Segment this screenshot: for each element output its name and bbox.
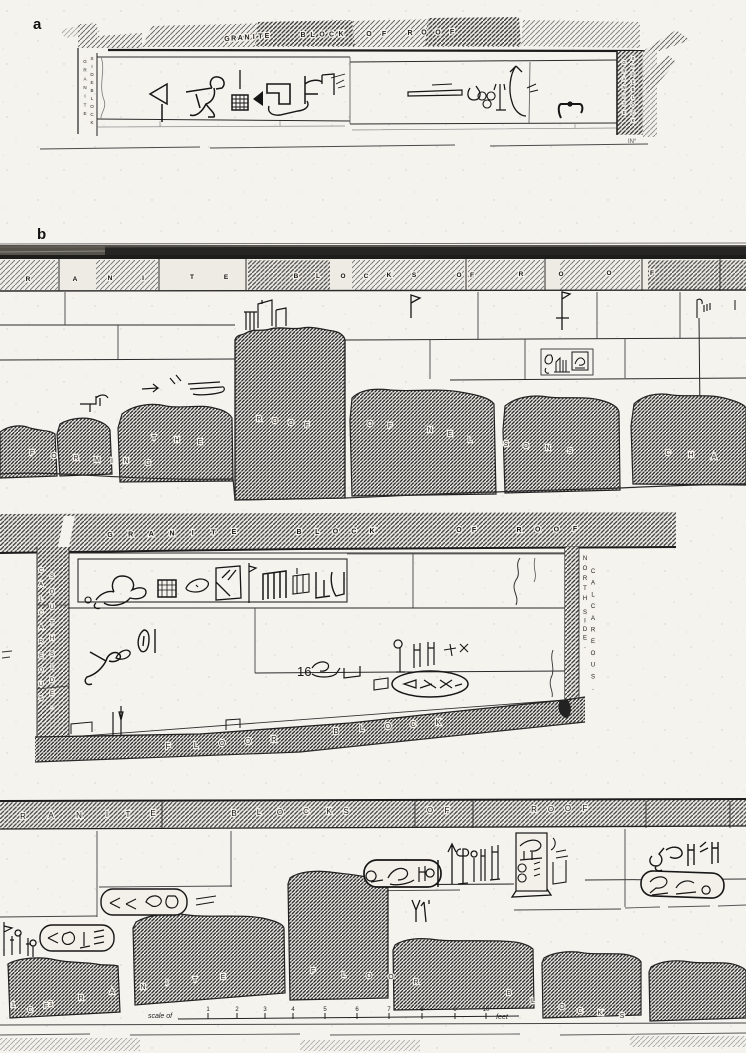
svg-text:O: O: [606, 270, 611, 277]
svg-text:F: F: [650, 270, 654, 277]
svg-text:E: E: [198, 439, 203, 446]
svg-text:O: O: [367, 421, 373, 428]
svg-text:A: A: [48, 811, 54, 820]
svg-text:O: O: [385, 722, 391, 731]
svg-text:O: O: [366, 973, 372, 980]
svg-text:L: L: [194, 741, 199, 750]
svg-text:N: N: [83, 85, 86, 90]
svg-text:K: K: [632, 118, 635, 123]
svg-text:T: T: [258, 34, 263, 41]
svg-text:I: I: [142, 275, 144, 282]
svg-text:T: T: [623, 102, 626, 107]
svg-text:K: K: [369, 528, 374, 535]
svg-text:B: B: [507, 990, 512, 997]
svg-text:R: R: [231, 36, 236, 43]
svg-text:O: O: [272, 418, 278, 425]
svg-text:S: S: [343, 807, 348, 816]
svg-text:C: C: [410, 720, 416, 729]
svg-text:O: O: [39, 668, 44, 674]
svg-text:feet: feet: [496, 1014, 509, 1021]
svg-text:O: O: [421, 30, 427, 37]
svg-text:A: A: [39, 582, 43, 588]
svg-text:K: K: [598, 1010, 603, 1017]
svg-text:O: O: [51, 453, 57, 460]
svg-text:E: E: [83, 111, 86, 116]
svg-text:E: E: [591, 639, 595, 645]
svg-text:U: U: [50, 605, 54, 611]
svg-text:A: A: [83, 76, 86, 81]
svg-text:F: F: [388, 423, 392, 430]
svg-text:A: A: [73, 276, 78, 283]
svg-text:E: E: [150, 809, 155, 818]
svg-text:I: I: [623, 93, 624, 98]
svg-text:F: F: [445, 806, 450, 815]
svg-text:C: C: [39, 568, 43, 574]
svg-text:L: L: [360, 724, 365, 733]
svg-text:R: R: [39, 639, 43, 645]
svg-text:N: N: [583, 556, 587, 562]
svg-text:E: E: [623, 110, 626, 115]
svg-text:E: E: [224, 274, 229, 281]
svg-text:O: O: [366, 31, 372, 38]
svg-text:S: S: [90, 56, 93, 61]
svg-text:C: C: [631, 110, 634, 115]
svg-text:B: B: [632, 87, 635, 92]
svg-text:O: O: [554, 526, 560, 533]
svg-text:L: L: [257, 808, 262, 817]
svg-text:H: H: [583, 596, 587, 602]
svg-text:K: K: [90, 120, 93, 125]
svg-text:G: G: [83, 59, 87, 64]
svg-text:L: L: [316, 273, 320, 280]
svg-text:L: L: [342, 972, 346, 979]
svg-text:K: K: [435, 718, 441, 727]
svg-text:R: R: [622, 68, 625, 73]
svg-text:B: B: [231, 809, 236, 818]
svg-text:F: F: [583, 804, 588, 813]
svg-text:D: D: [631, 72, 634, 77]
svg-text:T: T: [190, 274, 194, 281]
svg-text:E: E: [90, 80, 93, 85]
svg-text:C: C: [329, 31, 334, 38]
svg-text:F: F: [450, 29, 455, 36]
svg-text:R: R: [128, 532, 133, 539]
svg-text:N: N: [76, 811, 82, 820]
svg-text:D: D: [583, 627, 588, 633]
svg-text:C: C: [27, 1007, 32, 1014]
svg-text:E: E: [221, 974, 226, 981]
svg-text:R: R: [519, 271, 524, 278]
svg-text:H: H: [50, 636, 54, 642]
svg-text:E: E: [583, 636, 587, 642]
svg-text:N: N: [244, 35, 249, 42]
svg-text:O: O: [535, 527, 541, 534]
svg-text:I: I: [84, 94, 85, 99]
svg-text:C: C: [303, 807, 309, 816]
svg-text:E: E: [265, 33, 270, 40]
svg-text:O: O: [456, 527, 462, 534]
svg-text:F: F: [44, 1003, 48, 1010]
svg-text:I: I: [253, 34, 255, 41]
svg-text:T: T: [583, 586, 587, 592]
svg-text:T: T: [193, 977, 198, 984]
svg-text:O: O: [340, 273, 345, 280]
svg-text:N: N: [427, 427, 432, 434]
svg-text:A: A: [110, 989, 115, 996]
svg-text:F: F: [166, 742, 171, 751]
svg-text:I: I: [166, 980, 168, 987]
svg-text:O: O: [90, 104, 94, 109]
svg-text:B: B: [296, 529, 301, 536]
svg-text:I: I: [106, 810, 108, 819]
svg-text:C: C: [591, 569, 596, 575]
svg-text:R: R: [531, 805, 537, 814]
svg-text:R: R: [516, 527, 521, 534]
svg-text:K: K: [326, 807, 332, 816]
svg-text:S: S: [412, 272, 417, 279]
svg-text:S: S: [591, 674, 595, 680]
svg-text:M: M: [94, 457, 100, 464]
svg-text:T: T: [84, 102, 87, 107]
svg-text:R: R: [413, 979, 418, 986]
svg-text:E: E: [448, 431, 453, 438]
svg-text:b: b: [37, 226, 46, 243]
svg-text:T: T: [152, 435, 157, 442]
svg-text:E: E: [632, 79, 635, 84]
svg-text:A: A: [238, 35, 243, 42]
svg-text:10: 10: [483, 1007, 490, 1013]
svg-text:R: R: [20, 812, 26, 821]
svg-text:I: I: [111, 458, 113, 465]
svg-text:O: O: [456, 272, 461, 279]
svg-text:S: S: [583, 610, 587, 616]
svg-text:L: L: [531, 998, 535, 1005]
svg-text:O: O: [388, 974, 394, 981]
svg-text:R: R: [73, 455, 78, 462]
svg-text:U: U: [591, 663, 595, 669]
svg-text:T: T: [50, 621, 54, 627]
svg-text:B: B: [90, 88, 93, 93]
svg-text:L: L: [310, 32, 315, 39]
svg-text:N: N: [169, 531, 174, 538]
svg-text:N: N: [140, 984, 145, 991]
svg-text:F: F: [472, 527, 477, 534]
svg-text:O: O: [427, 806, 433, 815]
svg-text:U: U: [39, 682, 43, 688]
svg-text:R: R: [407, 30, 412, 37]
svg-text:R: R: [26, 276, 31, 283]
svg-text:A: A: [591, 581, 595, 587]
svg-text:O: O: [559, 1004, 565, 1011]
svg-text:scale of: scale of: [148, 1013, 173, 1020]
svg-text:N: N: [622, 85, 625, 90]
svg-text:L: L: [315, 529, 320, 536]
svg-text:R: R: [256, 416, 261, 423]
svg-text:O: O: [558, 271, 563, 278]
svg-text:G: G: [145, 460, 150, 467]
svg-text:F: F: [573, 526, 578, 533]
svg-text:R: R: [78, 995, 83, 1002]
svg-text:C: C: [364, 273, 369, 280]
svg-text:K: K: [338, 31, 343, 38]
svg-text:S: S: [50, 574, 54, 580]
svg-text:O: O: [523, 443, 529, 450]
svg-text:H: H: [174, 437, 179, 444]
svg-text:O: O: [548, 805, 554, 814]
svg-text:B: B: [294, 273, 299, 280]
svg-text:B: B: [300, 32, 305, 39]
svg-text:C: C: [39, 611, 43, 617]
svg-text:F: F: [311, 968, 315, 975]
svg-text:R: R: [583, 576, 588, 582]
svg-text:I: I: [91, 64, 92, 69]
svg-text:I: I: [192, 530, 194, 537]
svg-text:S: S: [504, 441, 509, 448]
svg-text:D: D: [50, 678, 55, 684]
svg-text:C: C: [591, 604, 596, 610]
svg-text:S: S: [568, 448, 573, 455]
svg-text:A: A: [591, 616, 595, 622]
svg-text:O: O: [219, 739, 225, 748]
svg-text:E: E: [232, 529, 237, 536]
svg-text:O: O: [277, 808, 283, 817]
svg-text:O: O: [245, 737, 251, 746]
svg-text:A: A: [712, 454, 717, 461]
svg-text:E: E: [39, 653, 43, 659]
svg-text:T: T: [211, 530, 216, 537]
svg-text:G: G: [224, 36, 230, 43]
svg-text:C: C: [665, 450, 670, 457]
svg-text:IN°: IN°: [628, 139, 637, 145]
svg-text:F: F: [305, 422, 309, 429]
svg-text:S: S: [39, 696, 43, 702]
svg-text:A: A: [149, 531, 154, 538]
svg-text:F: F: [470, 272, 474, 279]
svg-text:C: C: [577, 1008, 582, 1015]
svg-text:K: K: [387, 272, 392, 279]
svg-text:L: L: [39, 596, 42, 602]
svg-text:1: 1: [11, 1002, 15, 1009]
svg-text:R: R: [271, 735, 277, 744]
svg-text:N: N: [545, 445, 550, 452]
svg-text:G: G: [107, 532, 113, 539]
svg-text:H: H: [688, 452, 693, 459]
svg-text:C: C: [351, 528, 356, 535]
svg-text:A: A: [623, 77, 626, 82]
svg-text:S: S: [50, 652, 54, 658]
svg-text:O: O: [319, 32, 325, 39]
svg-text:N: N: [123, 458, 128, 465]
svg-text:16: 16: [297, 664, 311, 679]
svg-text:O: O: [435, 29, 441, 36]
svg-text:O: O: [333, 529, 339, 536]
svg-text:F: F: [30, 450, 34, 457]
svg-text:S: S: [620, 1013, 625, 1020]
svg-text:L: L: [468, 437, 472, 444]
svg-text:T: T: [126, 810, 131, 819]
svg-text:F: F: [382, 31, 387, 38]
svg-text:O: O: [288, 420, 294, 427]
svg-text:O: O: [591, 651, 596, 657]
svg-text:O: O: [565, 804, 571, 813]
svg-text:O: O: [583, 566, 588, 572]
svg-text:a: a: [33, 16, 42, 33]
svg-text:E: E: [50, 691, 54, 697]
svg-text:S: S: [632, 56, 635, 61]
svg-text:A: A: [39, 625, 43, 631]
svg-text:B: B: [333, 727, 338, 736]
svg-text:N: N: [108, 275, 113, 282]
svg-text:G: G: [622, 60, 625, 65]
svg-text:R: R: [591, 628, 596, 634]
svg-text:O: O: [50, 590, 55, 596]
svg-text:I: I: [632, 64, 633, 69]
